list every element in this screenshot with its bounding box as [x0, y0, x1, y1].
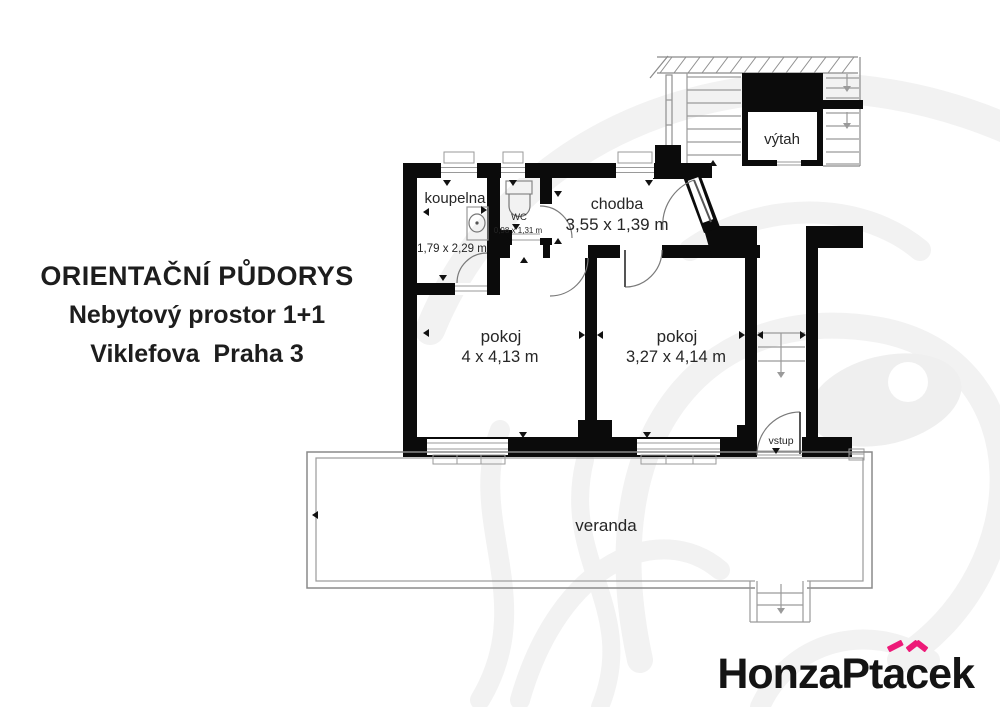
dims-wc: 0,98 x 1,31 m [494, 226, 543, 235]
label-pokoj-right: pokoj [657, 327, 698, 346]
label-chodba: chodba [591, 196, 644, 213]
label-wc: WC [511, 212, 527, 223]
logo-text-1: HonzaPt [717, 650, 882, 698]
plan-subtitle: Nebytový prostor 1+1 [8, 303, 386, 328]
label-vstup: vstup [768, 435, 793, 447]
title-block: ORIENTAČNÍ PŮDORYS Nebytový prostor 1+1 … [8, 263, 386, 367]
dims-koupelna: 1,79 x 2,29 m [417, 243, 487, 255]
label-veranda: veranda [575, 516, 637, 535]
logo-letter-a: a [882, 650, 905, 699]
logo-letter-c: c [905, 650, 928, 699]
dims-pokoj-left: 4 x 4,13 m [461, 348, 538, 366]
plan-address: Viklefova Praha 3 [8, 342, 386, 367]
caron-accent-icon [906, 640, 928, 652]
plan-title: ORIENTAČNÍ PŮDORYS [8, 263, 386, 290]
floor-plan-page: koupelna 1,79 x 2,29 m WC 0,98 x 1,31 m … [0, 0, 1000, 707]
label-pokoj-left: pokoj [481, 327, 522, 346]
honzaptacek-logo: HonzaPtacek [717, 650, 974, 699]
label-vytah: výtah [764, 131, 800, 148]
logo-text-2: ek [928, 650, 974, 698]
dims-chodba: 3,55 x 1,39 m [565, 215, 668, 234]
dims-pokoj-right: 3,27 x 4,14 m [626, 348, 726, 366]
label-koupelna: koupelna [425, 190, 487, 207]
